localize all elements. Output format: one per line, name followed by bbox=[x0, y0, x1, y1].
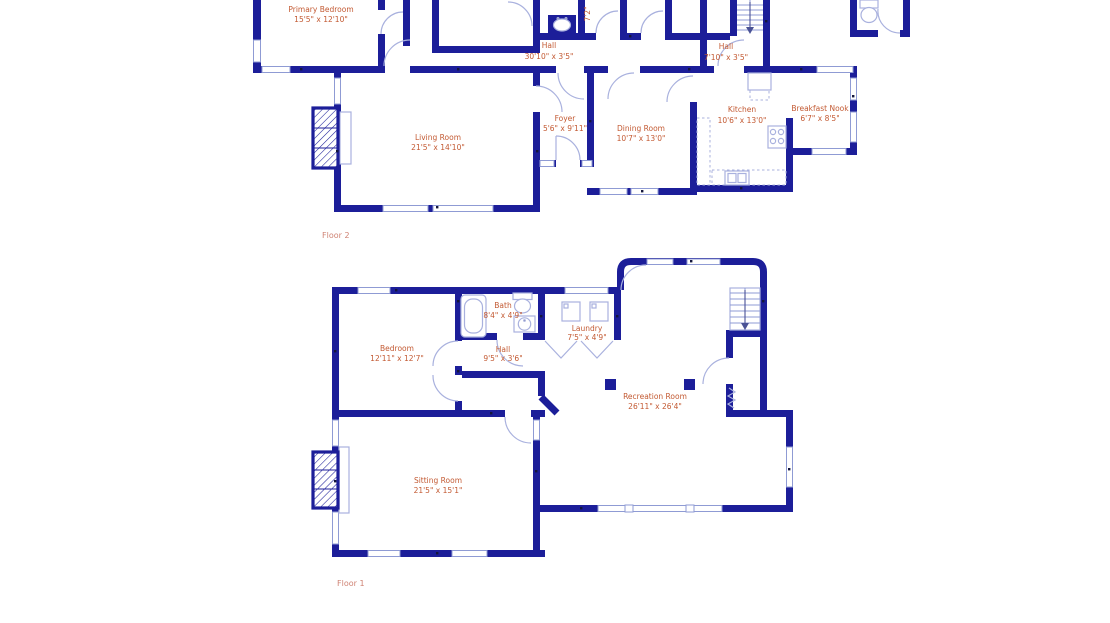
floor1-room-labels: Bedroom 12'11" x 12'7" Bath 8'4" x 4'9" … bbox=[337, 301, 687, 588]
bifold-doors bbox=[545, 341, 613, 358]
stairs-arrowhead-icon bbox=[741, 323, 749, 330]
primary-bedroom-label: Primary Bedroom bbox=[288, 5, 353, 14]
hall-floor1-label: Hall bbox=[496, 345, 510, 354]
living-room-dims: 21'5" x 14'10" bbox=[411, 143, 465, 152]
living-room-label: Living Room bbox=[415, 133, 461, 142]
bath-dims: 8'4" x 4'9" bbox=[483, 311, 522, 320]
floor1-title: Floor 1 bbox=[337, 579, 365, 588]
fireplace-floor1 bbox=[313, 447, 349, 513]
floor2-plan: Primary Bedroom 15'5" x 12'10" Hall 30'1… bbox=[253, 0, 910, 240]
kitchen-label: Kitchen bbox=[728, 105, 756, 114]
washer bbox=[562, 302, 580, 321]
floor2-title: Floor 2 bbox=[322, 231, 350, 240]
bedroom-dims: 12'11" x 12'7" bbox=[370, 354, 424, 363]
stove bbox=[768, 126, 786, 148]
bedroom-label: Bedroom bbox=[380, 344, 414, 353]
vanity-sink bbox=[548, 15, 576, 35]
hall-small-label: Hall bbox=[719, 42, 733, 51]
partial-dim-label: 7'2" bbox=[583, 6, 592, 21]
sitting-room-dims: 21'5" x 15'1" bbox=[414, 486, 463, 495]
hall-main-label: Hall bbox=[542, 41, 556, 50]
breakfast-nook-dims: 6'7" x 8'5" bbox=[800, 114, 839, 123]
dining-room-dims: 10'7" x 13'0" bbox=[617, 134, 666, 143]
breakfast-nook-label: Breakfast Nook bbox=[791, 104, 849, 113]
bath-label: Bath bbox=[494, 301, 512, 310]
column-post bbox=[684, 379, 695, 390]
laundry-label: Laundry bbox=[572, 324, 603, 333]
laundry-dims: 7'5" x 4'9" bbox=[567, 333, 606, 342]
hall-small-dims: 7'10" x 3'5" bbox=[704, 53, 748, 62]
hall-main-dims: 30'10" x 3'5" bbox=[525, 52, 574, 61]
kitchen-dims: 10'6" x 13'0" bbox=[718, 116, 767, 125]
floor1-plan: Bedroom 12'11" x 12'7" Bath 8'4" x 4'9" … bbox=[313, 259, 793, 588]
foyer-dims: 5'6" x 9'11" bbox=[543, 124, 587, 133]
bathtub bbox=[461, 295, 486, 337]
foyer-label: Foyer bbox=[555, 114, 577, 123]
sitting-room-label: Sitting Room bbox=[414, 476, 462, 485]
fireplace-floor2 bbox=[313, 108, 351, 168]
toilet bbox=[513, 293, 532, 313]
floorplan-canvas: Primary Bedroom 15'5" x 12'10" Hall 30'1… bbox=[0, 0, 1110, 623]
column-post bbox=[605, 379, 616, 390]
staircase-floor2 bbox=[737, 0, 763, 34]
recreation-room-label: Recreation Room bbox=[623, 392, 687, 401]
column-posts bbox=[605, 379, 695, 390]
toilet bbox=[860, 0, 878, 23]
kitchen-sink bbox=[725, 171, 749, 185]
recreation-room-dims: 26'11" x 26'4" bbox=[628, 402, 682, 411]
dining-room-label: Dining Room bbox=[617, 124, 665, 133]
hall-floor1-dims: 9'5" x 3'6" bbox=[483, 354, 522, 363]
refrigerator bbox=[748, 73, 771, 100]
primary-bedroom-dims: 15'5" x 12'10" bbox=[294, 15, 348, 24]
dryer bbox=[590, 302, 608, 321]
